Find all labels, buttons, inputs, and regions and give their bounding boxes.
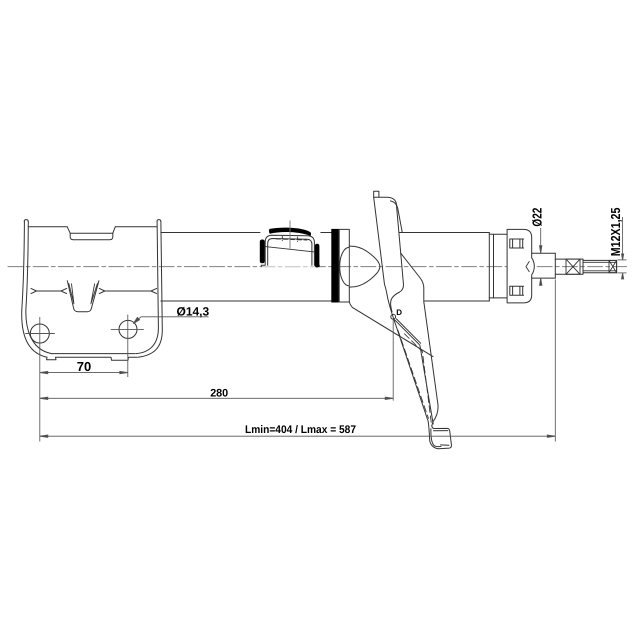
svg-text:M12X1,25: M12X1,25: [608, 208, 623, 257]
svg-text:Ø22: Ø22: [529, 208, 544, 227]
svg-text:Ø14,3: Ø14,3: [177, 305, 210, 319]
svg-text:70: 70: [77, 359, 91, 374]
svg-text:280: 280: [210, 388, 228, 400]
svg-text:Lmin=404 / Lmax = 587: Lmin=404 / Lmax = 587: [245, 424, 356, 436]
svg-text:D: D: [396, 308, 402, 317]
